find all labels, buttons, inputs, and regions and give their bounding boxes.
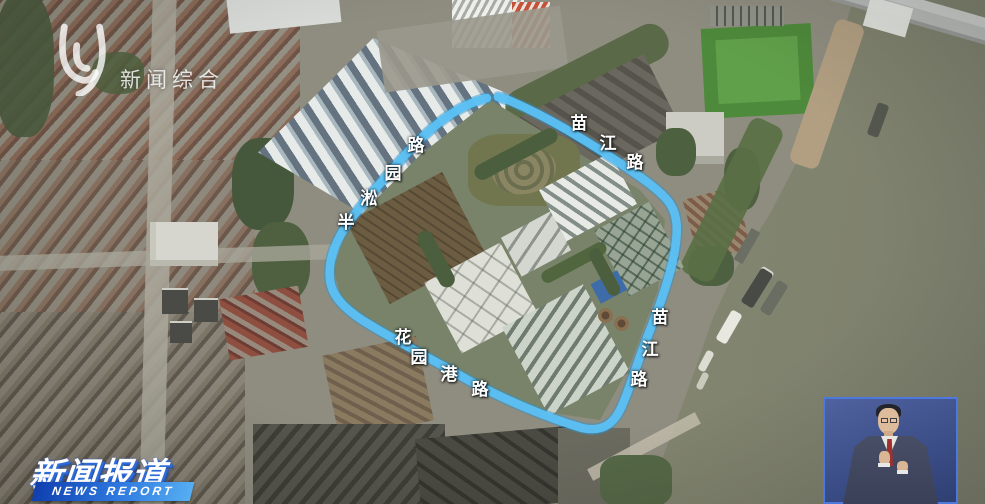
- channel-logo-icon: [52, 20, 114, 96]
- program-subtitle-ribbon: NEWS REPORT: [32, 482, 195, 501]
- interpreter-cuff: [897, 470, 908, 474]
- road-label-char: 园: [409, 348, 429, 368]
- channel-watermark: 新闻综合: [44, 16, 314, 108]
- glasses-lens: [890, 418, 897, 423]
- road-label-char: 花: [393, 328, 413, 348]
- road-label-char: 苗: [650, 308, 670, 328]
- interpreter-glasses: [880, 418, 898, 424]
- road-label-char: 园: [383, 164, 403, 184]
- road-label-char: 淞: [359, 189, 379, 209]
- program-subtitle: NEWS REPORT: [51, 482, 176, 501]
- glasses-lens: [881, 418, 888, 423]
- sign-language-interpreter-inset: [823, 397, 958, 504]
- road-label-char: 苗: [569, 114, 589, 134]
- road-label-char: 江: [598, 134, 618, 154]
- road-label-char: 路: [470, 380, 490, 400]
- news-video-frame: 半 淞 园 路 苗 江 路 苗 江 路 花 园 港 路 新闻综合 新闻报道 NE…: [0, 0, 985, 504]
- program-logo: 新闻报道 NEWS REPORT: [26, 448, 226, 504]
- road-label-char: 路: [625, 153, 645, 173]
- route-glow: [330, 97, 677, 429]
- road-label-char: 港: [439, 365, 459, 385]
- channel-name: 新闻综合: [120, 64, 224, 94]
- route-line: [330, 97, 677, 429]
- interpreter-cuff: [878, 463, 890, 467]
- road-label-char: 半: [336, 213, 356, 233]
- road-label-char: 路: [629, 370, 649, 390]
- road-label-char: 江: [640, 340, 660, 360]
- road-label-char: 路: [406, 136, 426, 156]
